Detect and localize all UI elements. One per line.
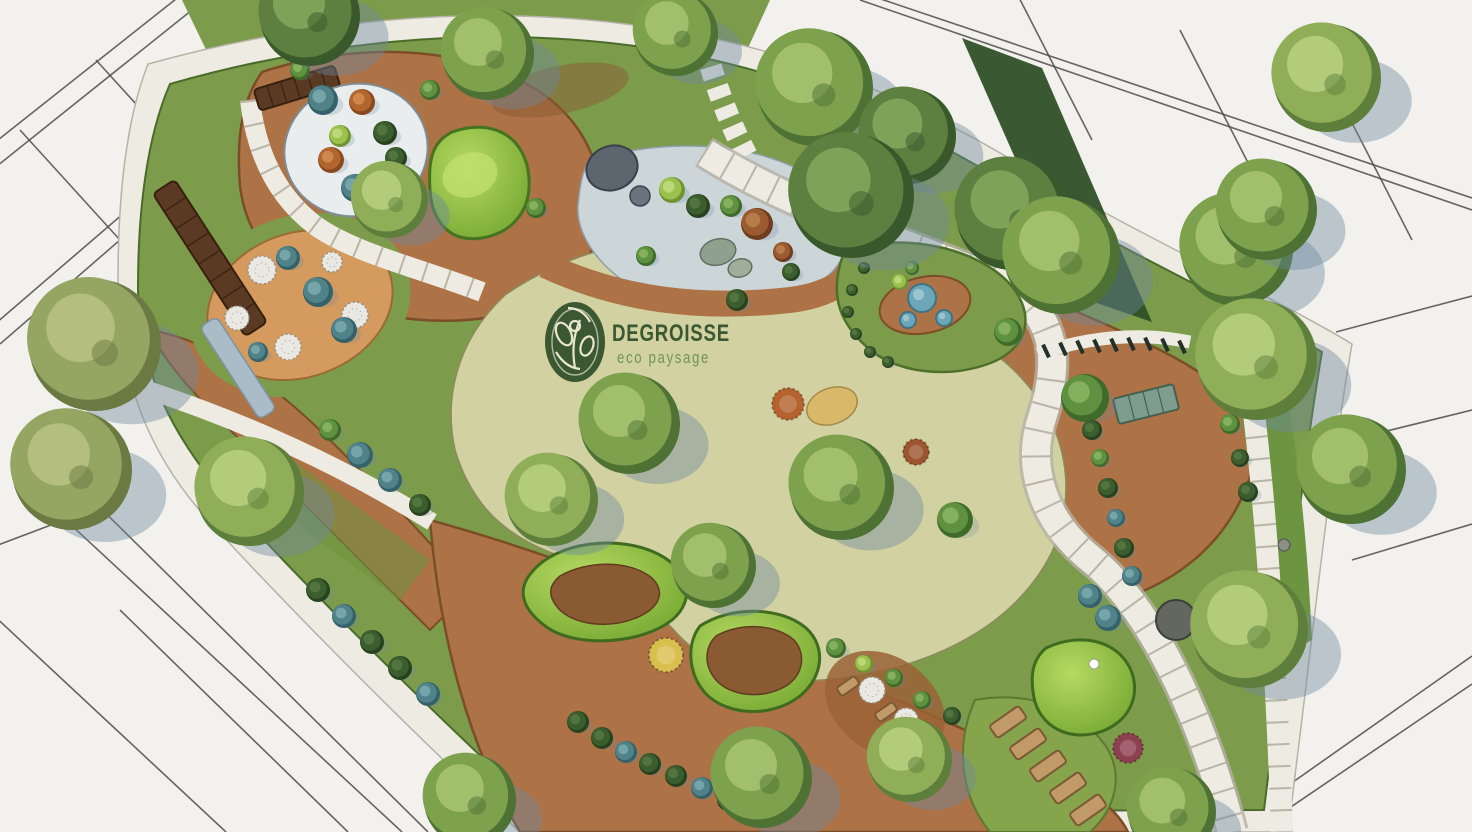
shrub-highlight: [570, 714, 580, 724]
tree-texture: [812, 83, 835, 106]
gravel-circle: [275, 334, 301, 360]
tree-texture: [849, 191, 874, 216]
shrub-highlight: [336, 608, 347, 619]
shrub-highlight: [1101, 481, 1110, 490]
shrub-highlight: [335, 321, 347, 333]
shrub-highlight: [785, 266, 793, 274]
shrub-highlight: [1117, 541, 1126, 550]
shrub-highlight: [313, 90, 327, 104]
tree-texture: [674, 31, 691, 48]
tree-texture: [468, 796, 486, 814]
pond-highlight: [913, 289, 924, 300]
boulder-small: [630, 186, 650, 206]
shrub-highlight: [388, 150, 398, 160]
shrub-highlight: [280, 250, 291, 261]
flower-circle-center: [657, 646, 676, 665]
shrub-highlight: [946, 710, 954, 718]
shrub-highlight: [848, 286, 853, 291]
tree-texture: [247, 488, 269, 510]
pond-highlight: [939, 313, 945, 319]
shrub-highlight: [353, 93, 365, 105]
shrub-highlight: [694, 780, 704, 790]
tree-texture: [1265, 206, 1285, 226]
dark-gravel-circle: [1156, 600, 1196, 640]
tree-texture: [69, 465, 93, 489]
tree-texture: [550, 496, 568, 514]
shrub-highlight: [663, 181, 675, 193]
shrub-highlight: [310, 582, 321, 593]
tree-texture: [1170, 808, 1188, 826]
shrub-highlight: [594, 730, 604, 740]
shrub-highlight: [1099, 609, 1111, 621]
shrub-highlight: [844, 308, 849, 313]
shrub-highlight: [1082, 588, 1093, 599]
shrub-highlight: [916, 694, 924, 702]
shrub-highlight: [1241, 485, 1250, 494]
tree-texture: [906, 132, 925, 151]
shrub-highlight: [392, 660, 403, 671]
gravel-circle: [248, 256, 276, 284]
shrub-highlight: [382, 472, 393, 483]
flower-circle-center: [909, 445, 923, 459]
tree-texture: [388, 197, 403, 212]
shrub-highlight: [420, 686, 431, 697]
shrub-highlight: [942, 507, 958, 523]
shrub-highlight: [829, 641, 838, 650]
logo-title: DEGROISSE: [612, 320, 730, 347]
shrub-highlight: [1085, 423, 1094, 432]
raised-mound-a-soil: [551, 564, 660, 624]
tree-texture: [760, 774, 780, 794]
knoll-ball: [1089, 659, 1099, 669]
shrub-highlight: [1125, 569, 1134, 578]
shrub-highlight: [884, 358, 889, 363]
shrub-highlight: [322, 422, 332, 432]
tree-texture: [1349, 466, 1371, 488]
shrub-highlight: [894, 276, 901, 283]
shrub-highlight: [642, 756, 652, 766]
shrub-highlight: [529, 201, 538, 210]
gravel-circle: [322, 252, 342, 272]
tree-texture: [712, 563, 729, 580]
tree-texture: [92, 340, 118, 366]
shrub-highlight: [1094, 452, 1102, 460]
tree-texture: [839, 484, 860, 505]
tree-texture: [628, 420, 648, 440]
tree-texture: [1247, 625, 1270, 648]
shrub-highlight: [1110, 512, 1118, 520]
flower-circle-center: [779, 395, 797, 413]
shrub-highlight: [639, 249, 648, 258]
shrub-highlight: [998, 322, 1011, 335]
shrub-highlight: [351, 446, 363, 458]
shrub-highlight: [888, 672, 896, 680]
shrub-highlight: [412, 497, 422, 507]
shrub-highlight: [332, 128, 342, 138]
tree-texture: [908, 757, 925, 774]
landscape-plan-illustration: DEGROISSE eco paysage: [0, 0, 1472, 832]
shrub-highlight: [723, 198, 733, 208]
shrub-highlight: [251, 345, 260, 354]
flower-circle-center: [1120, 740, 1137, 757]
gravel-circle: [859, 677, 885, 703]
shrub-highlight: [1234, 452, 1242, 460]
tree-texture: [1059, 251, 1082, 274]
shrub-highlight: [423, 83, 432, 92]
shrub-highlight: [746, 213, 760, 227]
tree-texture: [308, 12, 328, 32]
shrub-highlight: [729, 292, 739, 302]
shrub-highlight: [1223, 417, 1232, 426]
tree-texture: [486, 50, 504, 68]
drain-cover: [1278, 539, 1290, 551]
green-knoll: [1032, 640, 1134, 735]
pond-highlight: [903, 315, 909, 321]
shrub-highlight: [866, 348, 871, 353]
shrub-highlight: [852, 330, 857, 335]
shrub-highlight: [776, 245, 785, 254]
shrub-highlight: [322, 151, 334, 163]
shrub-highlight: [618, 744, 628, 754]
tree-texture: [1324, 74, 1346, 96]
shrub-highlight: [308, 282, 322, 296]
logo-tagline: eco paysage: [617, 349, 710, 367]
shrub-highlight: [364, 634, 375, 645]
shrub-highlight: [668, 768, 678, 778]
tree-texture: [1254, 355, 1278, 379]
shrub-highlight: [690, 198, 701, 209]
shrub-highlight: [858, 658, 866, 666]
gravel-circle: [225, 306, 249, 330]
shrub-highlight: [377, 125, 388, 136]
raised-mound-b-soil: [707, 627, 802, 695]
shrub-highlight: [1068, 381, 1090, 403]
